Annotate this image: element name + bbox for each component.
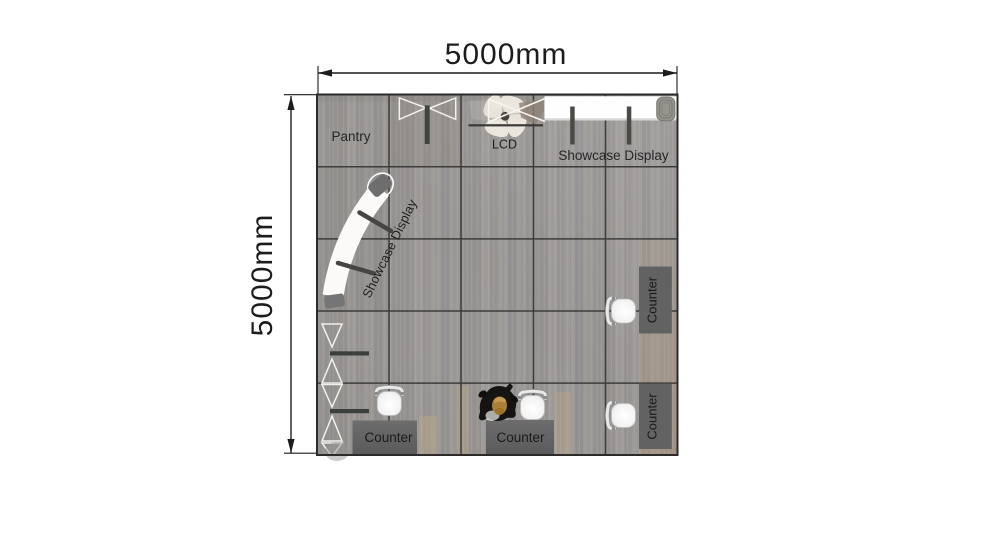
svg-text:Counter: Counter — [496, 430, 545, 445]
svg-text:Counter: Counter — [645, 393, 660, 440]
svg-text:5000mm: 5000mm — [246, 214, 279, 337]
svg-text:Pantry: Pantry — [331, 129, 370, 144]
svg-text:5000mm: 5000mm — [445, 38, 568, 71]
svg-text:LCD: LCD — [492, 138, 517, 152]
svg-text:Counter: Counter — [364, 430, 413, 445]
svg-text:Showcase Display: Showcase Display — [558, 148, 669, 163]
svg-text:Counter: Counter — [645, 276, 660, 323]
